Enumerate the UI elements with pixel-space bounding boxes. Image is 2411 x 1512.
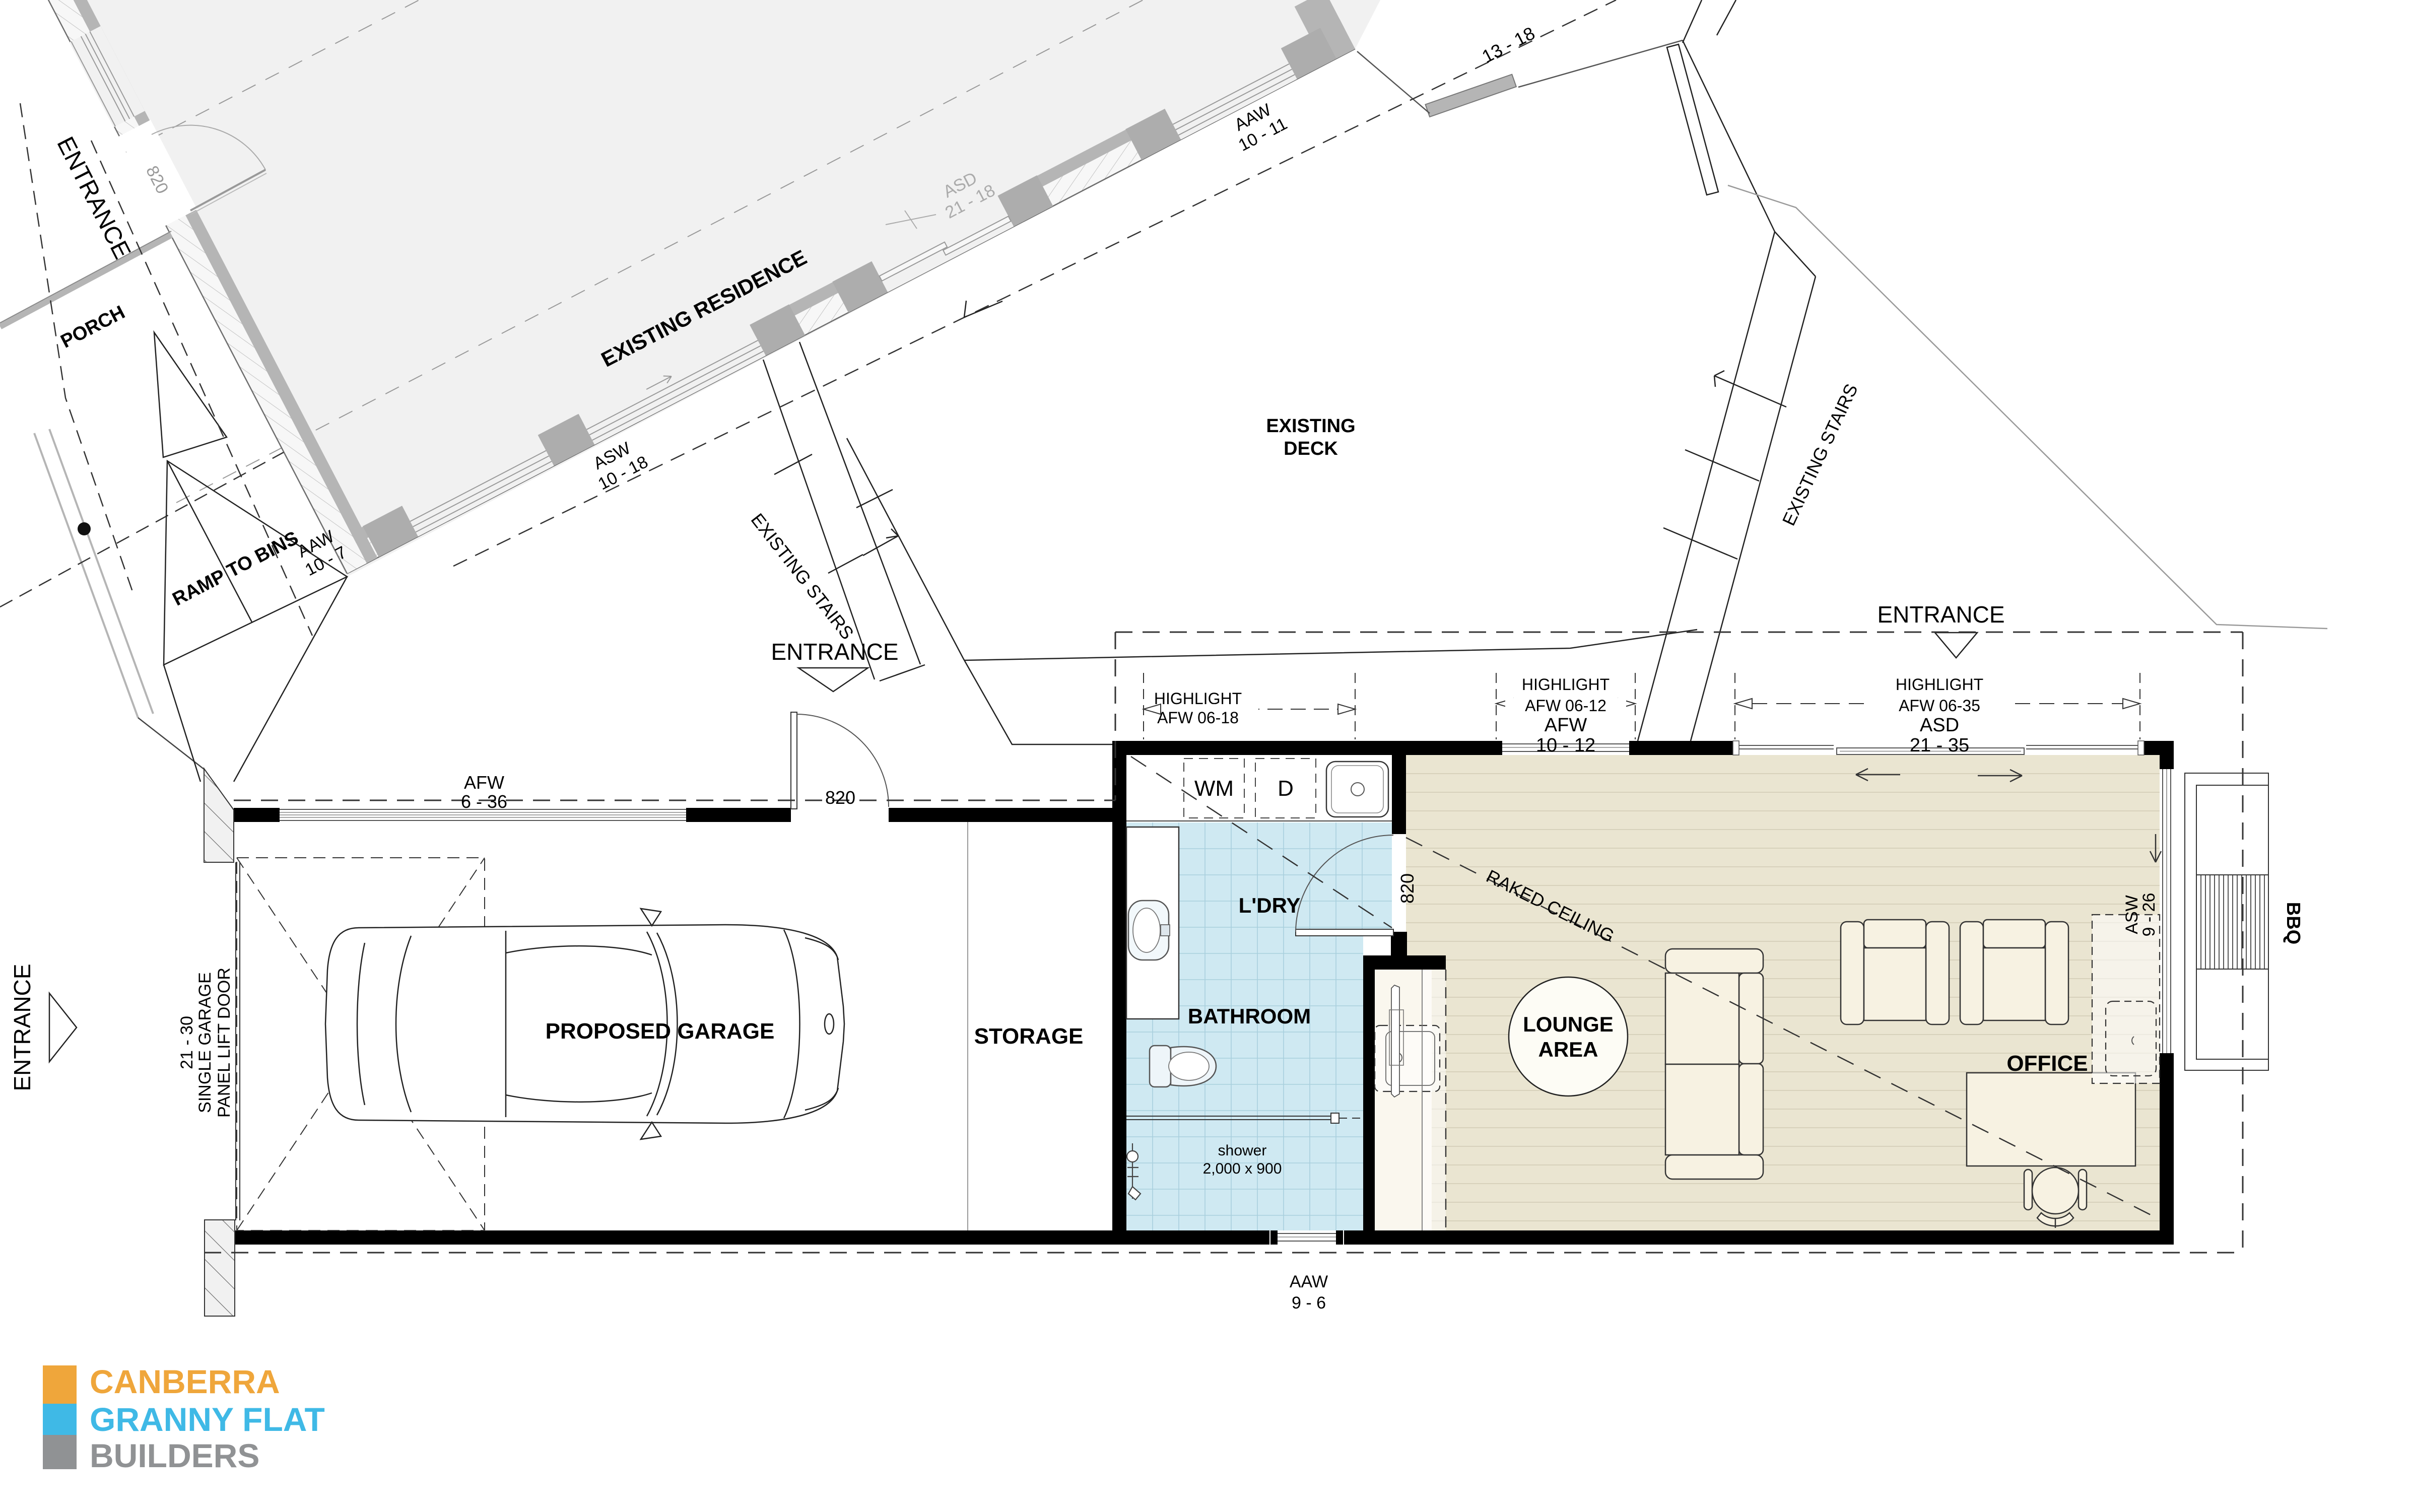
svg-text:OFFICE: OFFICE <box>2006 1051 2088 1076</box>
svg-text:AFW 06-18: AFW 06-18 <box>1157 709 1239 727</box>
svg-text:21 - 30: 21 - 30 <box>177 1016 196 1069</box>
svg-text:GRANNY FLAT: GRANNY FLAT <box>90 1401 325 1438</box>
svg-text:L'DRY: L'DRY <box>1239 894 1301 917</box>
svg-text:10 - 12: 10 - 12 <box>1536 735 1595 756</box>
svg-text:ENTRANCE: ENTRANCE <box>9 964 35 1091</box>
svg-text:820: 820 <box>825 787 855 808</box>
svg-text:DECK: DECK <box>1284 438 1338 459</box>
svg-text:BATHROOM: BATHROOM <box>1188 1004 1311 1028</box>
svg-text:ASD: ASD <box>1920 715 1959 736</box>
svg-text:9 - 6: 9 - 6 <box>1292 1293 1326 1313</box>
svg-text:STORAGE: STORAGE <box>974 1024 1084 1049</box>
svg-text:AFW 06-12: AFW 06-12 <box>1525 697 1606 715</box>
svg-text:PROPOSED GARAGE: PROPOSED GARAGE <box>546 1019 775 1044</box>
svg-text:AREA: AREA <box>1538 1038 1598 1061</box>
svg-text:AFW: AFW <box>464 772 504 793</box>
svg-text:ASW: ASW <box>2122 895 2141 934</box>
svg-text:SINGLE GARAGE: SINGLE GARAGE <box>195 972 215 1113</box>
svg-text:shower: shower <box>1218 1142 1267 1159</box>
svg-text:AFW: AFW <box>1545 715 1587 736</box>
svg-text:9 - 26: 9 - 26 <box>2139 893 2159 937</box>
svg-text:AAW: AAW <box>1290 1272 1328 1291</box>
svg-text:21 - 35: 21 - 35 <box>1910 735 1969 756</box>
svg-text:HIGHLIGHT: HIGHLIGHT <box>1896 675 1983 694</box>
svg-text:D: D <box>1278 776 1294 801</box>
svg-text:HIGHLIGHT: HIGHLIGHT <box>1522 675 1610 694</box>
svg-text:CANBERRA: CANBERRA <box>90 1363 280 1400</box>
svg-text:WM: WM <box>1194 776 1234 801</box>
svg-text:BBQ: BBQ <box>2283 902 2304 944</box>
svg-text:BUILDERS: BUILDERS <box>90 1437 259 1474</box>
svg-text:AFW 06-35: AFW 06-35 <box>1899 697 1980 715</box>
svg-text:PANEL LIFT DOOR: PANEL LIFT DOOR <box>215 968 234 1118</box>
svg-text:2,000 x 900: 2,000 x 900 <box>1203 1160 1282 1177</box>
svg-text:LOUNGE: LOUNGE <box>1523 1012 1614 1036</box>
svg-text:ENTRANCE: ENTRANCE <box>771 639 898 665</box>
svg-text:820: 820 <box>1397 873 1418 904</box>
svg-text:ENTRANCE: ENTRANCE <box>1877 601 2004 628</box>
svg-text:EXISTING: EXISTING <box>1266 416 1355 437</box>
svg-text:6 - 36: 6 - 36 <box>461 791 507 812</box>
